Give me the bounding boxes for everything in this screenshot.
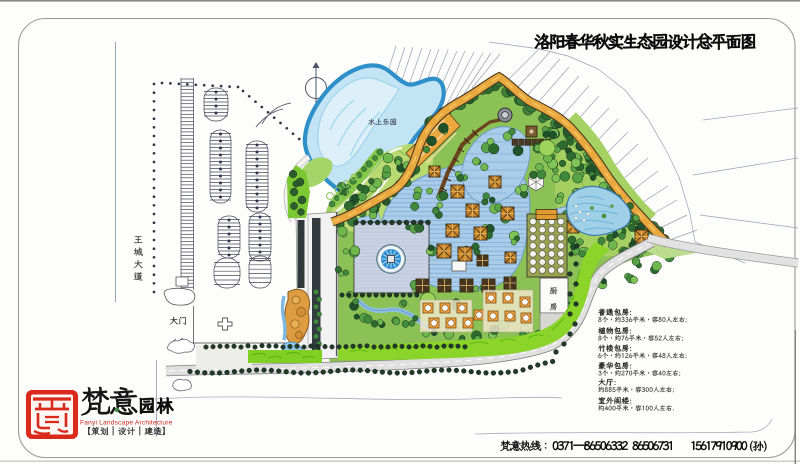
svg-text:Fanyi Landscape Architecture: Fanyi Landscape Architecture — [80, 420, 173, 427]
